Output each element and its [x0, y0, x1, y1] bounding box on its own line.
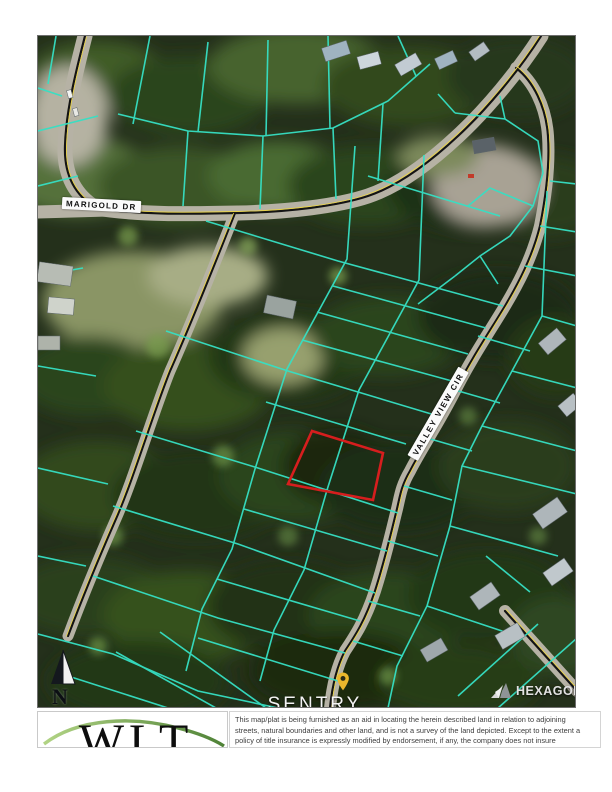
sentry-logo-text: SENTRY — [250, 696, 380, 708]
map-pin-icon — [336, 672, 350, 691]
disclaimer: This map/plat is being furnished as an a… — [229, 711, 601, 748]
hexagon-logo-icon — [490, 682, 512, 699]
sentry-dynamics-logo: SENTRY DYNAMICS — [250, 672, 380, 708]
disclaimer-line: streets, natural boundaries and other la… — [235, 726, 595, 737]
disclaimer-line: policy of title insurance is expressly m… — [235, 736, 595, 747]
wlt-logo: WLT — [37, 711, 228, 748]
wlt-logo-text: WLT — [79, 715, 194, 748]
aerial-map: MARIGOLD DR VALLEY VIEW CIR N SENTRY DYN… — [37, 35, 576, 708]
plat-map-page: MARIGOLD DR VALLEY VIEW CIR N SENTRY DYN… — [0, 0, 612, 792]
aerial-imagery — [38, 36, 576, 708]
north-arrow-label: N — [52, 684, 68, 708]
hexagon-logo: HEXAGON — [490, 682, 576, 699]
north-arrow-icon: N — [46, 648, 80, 708]
hexagon-logo-text: HEXAGON — [516, 684, 576, 698]
disclaimer-line: This map/plat is being furnished as an a… — [235, 715, 595, 726]
